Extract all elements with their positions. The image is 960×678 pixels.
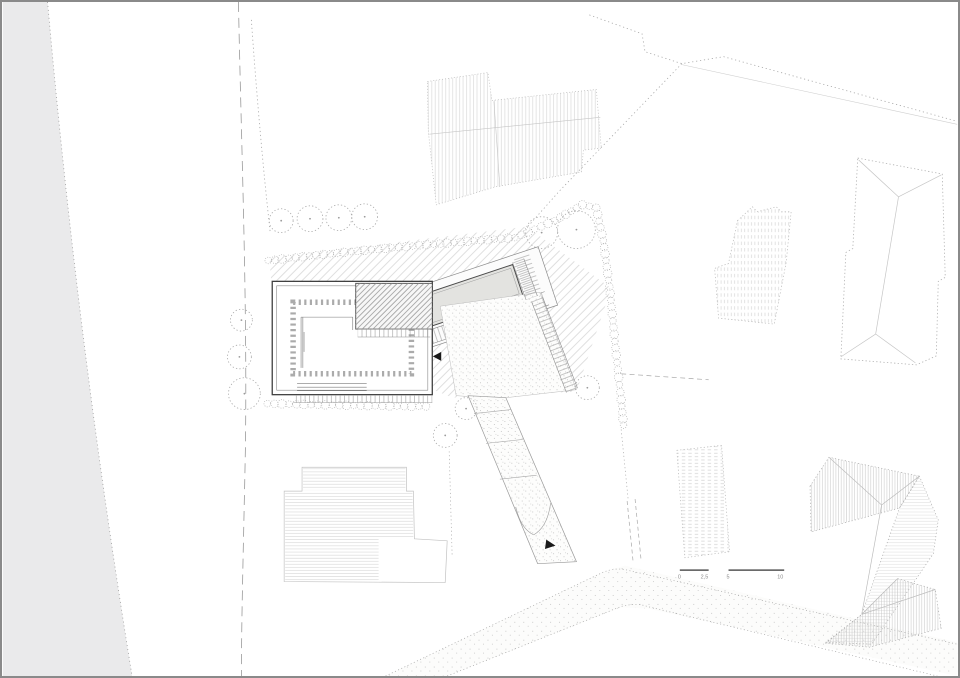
hedge-bush [603,263,611,271]
hedge-bush [616,381,623,388]
scale-label-10: 10 [777,575,783,581]
hedge-bush [586,203,593,210]
tree [228,378,260,410]
site-plan-canvas: 0 2,5 5 10 [0,0,960,678]
hedge-bush [610,317,617,324]
hedge-bush [372,403,379,410]
site-plan-svg: 0 2,5 5 10 [2,2,958,676]
hedge-bush [593,204,601,212]
hedge-bush [600,243,608,251]
hedge-bush [597,224,605,232]
annex-louvre-comb [358,329,431,337]
hedge-bush [614,366,622,374]
tree [227,345,251,369]
south-facade-comb [293,396,432,403]
hedge-bush [538,223,546,231]
hedge-bush [407,402,416,411]
driveway-path [468,396,576,564]
scale-label-5: 5 [727,575,730,581]
hedge-bush [264,400,271,407]
road-edge-dotted [251,20,270,233]
hedge-bush [400,402,408,410]
hedge-bush [603,257,610,264]
hedge-bush [286,401,293,408]
hedge-bush [394,403,401,410]
hedge-bush [379,402,387,410]
tree [297,206,323,232]
hedge-bush [544,219,553,228]
annex-roof [356,283,433,337]
tree [558,211,596,249]
building-southwest [284,467,447,582]
road-centerline [238,2,245,676]
scale-label-0: 0 [678,575,681,581]
hedge-bush [612,338,619,345]
hedge-bush [415,403,422,410]
hedge-bush [531,226,538,233]
hedge-bush [614,373,623,382]
hedge-bush [608,303,616,311]
hedge-bush [617,388,625,396]
hedge-bush [350,402,357,409]
building-east-hip-roof [841,158,945,365]
hedge-bush [620,422,627,429]
hedge-bush [278,400,287,409]
hedge-bush [608,297,615,304]
building-northeast-existing [715,207,792,324]
hedge-bush [612,344,620,352]
road-west-lines [238,2,270,676]
hedge-bush [385,402,394,411]
tree [230,309,252,331]
tree [433,423,457,447]
scale-label-2-5: 2,5 [701,575,709,581]
tree [352,204,378,230]
hedge-bush [271,400,279,408]
hedge-bush [357,402,365,410]
hedge-bush [551,217,558,224]
hedge-bush [422,403,430,411]
building-southeast-small [677,445,730,557]
hedge-bush [610,324,618,332]
hedge-bush [568,208,575,215]
tree [326,205,352,231]
scale-bar: 0 2,5 5 10 [678,570,784,580]
ground-shading-west [3,2,132,676]
hedge-bush [614,359,621,366]
tree [269,209,293,233]
building-north-existing [427,73,601,205]
